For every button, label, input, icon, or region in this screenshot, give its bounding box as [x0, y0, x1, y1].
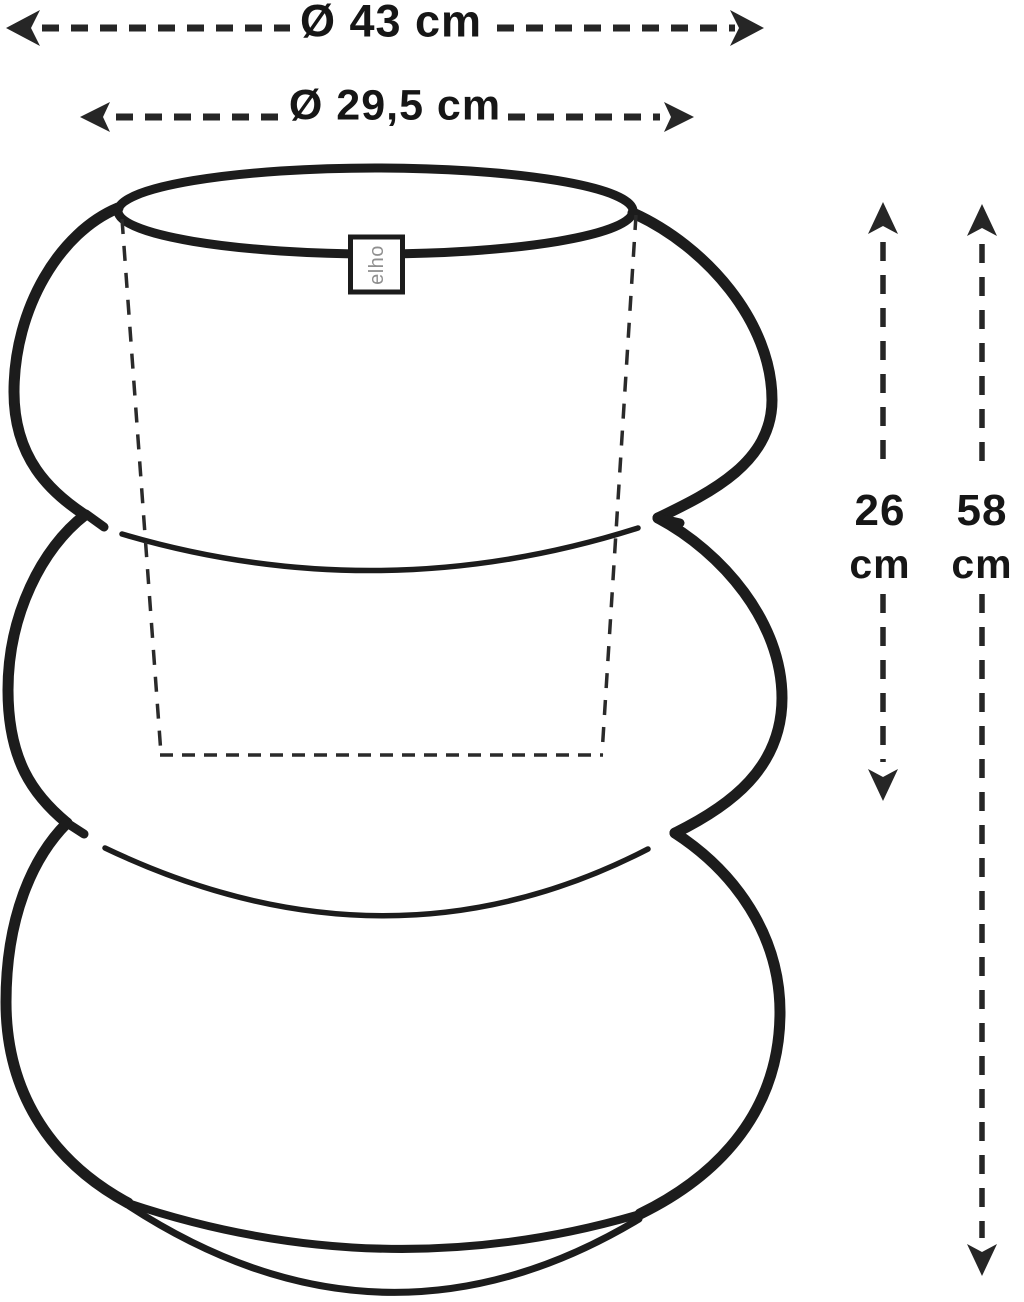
outer-diameter-label: Ø 43 cm — [300, 0, 482, 44]
pot-bottom-tier-left-outline — [6, 823, 128, 1203]
tier-junction-2-arc — [105, 848, 648, 916]
inner-height-label: 26 cm — [849, 489, 910, 585]
arrow-up-icon — [967, 204, 997, 236]
pot-bottom-tier-bottom-arc — [128, 1203, 640, 1249]
arrow-up-icon — [868, 202, 898, 234]
pot-bottom-tier-right-outline — [640, 833, 780, 1214]
arrow-down-icon — [868, 769, 898, 801]
total-height-unit: cm — [951, 544, 1012, 585]
inner-pot-dashed-left — [122, 219, 161, 754]
arrow-right-icon — [730, 10, 764, 46]
arrow-down-icon — [967, 1244, 997, 1276]
brand-tag-label: elho — [367, 245, 387, 285]
pot-middle-tier-right-outline — [658, 518, 782, 833]
total-height-value: 58 — [957, 486, 1008, 535]
tier-junction-1-arc — [122, 528, 638, 571]
inner-height-unit: cm — [849, 544, 910, 585]
pot-top-tier-left-outline — [14, 208, 118, 515]
pot-middle-tier-left-outline — [8, 515, 85, 823]
arrow-left-icon — [80, 102, 110, 132]
pot-outline-svg — [0, 0, 1024, 1302]
dimension-diagram: Ø 43 cm Ø 29,5 cm 26 cm 58 cm elho — [0, 0, 1024, 1302]
inner-height-value: 26 — [855, 486, 906, 535]
arrow-right-icon — [664, 102, 694, 132]
arrow-left-icon — [6, 10, 40, 46]
total-height-label: 58 cm — [951, 489, 1012, 585]
inner-diameter-label: Ø 29,5 cm — [289, 85, 501, 128]
pot-top-tier-right-outline — [633, 213, 772, 518]
inner-pot-dashed-right — [602, 215, 636, 754]
